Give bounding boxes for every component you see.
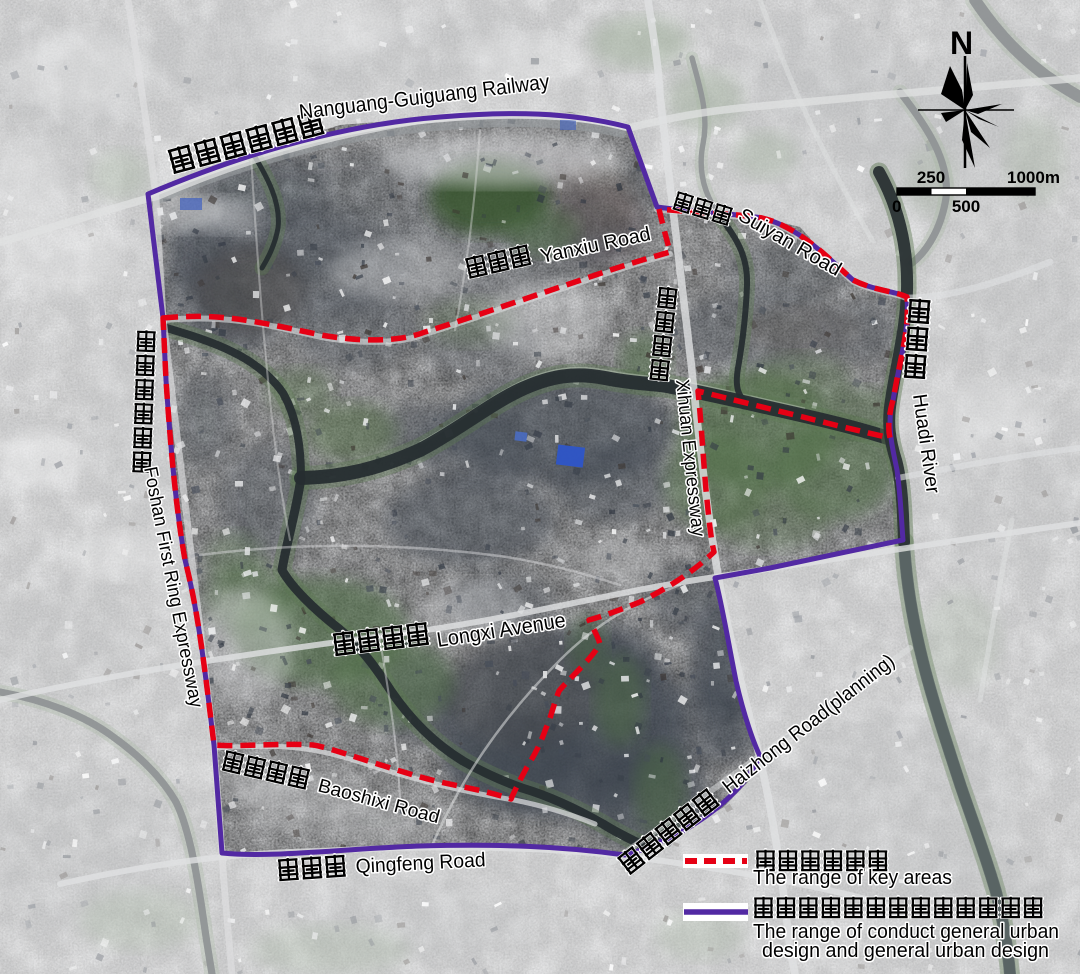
svg-text:250: 250 [917, 168, 945, 187]
svg-text:design and general urban desig: design and general urban design [762, 940, 1049, 962]
svg-text:The range of key areas: The range of key areas [753, 867, 952, 889]
svg-text:N: N [950, 25, 973, 61]
svg-text:0: 0 [892, 197, 901, 216]
svg-text:500: 500 [952, 197, 980, 216]
svg-text:1000m: 1000m [1007, 168, 1060, 187]
